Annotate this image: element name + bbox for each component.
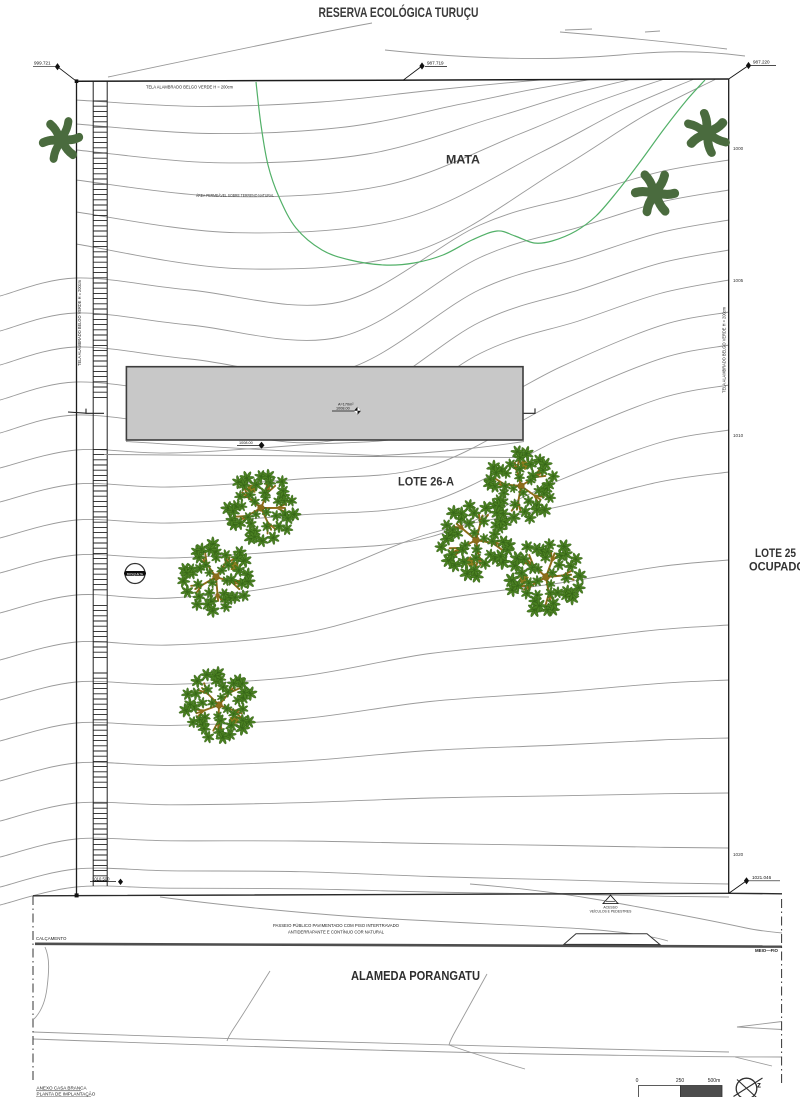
svg-text:1005: 1005 [733, 278, 744, 283]
svg-text:TELA ALAMBRADO BELGO VERDE H =: TELA ALAMBRADO BELGO VERDE H = 200cm [77, 280, 82, 366]
svg-text:CALÇAMENTO: CALÇAMENTO [36, 936, 67, 941]
svg-text:0: 0 [636, 1078, 639, 1084]
svg-text:LOTE 26-A: LOTE 26-A [398, 477, 454, 489]
svg-text:TELA ALAMBRADO BELGO VERDE H =: TELA ALAMBRADO BELGO VERDE H = 200cm [722, 307, 727, 393]
svg-text:LOTE 25: LOTE 25 [755, 546, 796, 560]
svg-text:1021.046: 1021.046 [752, 875, 772, 880]
svg-text:1008.00: 1008.00 [239, 441, 253, 445]
svg-text:1000: 1000 [733, 146, 744, 151]
svg-text:1010.500: 1010.500 [92, 877, 110, 882]
svg-text:ANTIDERRAPANTE E CONTÍNUO COR: ANTIDERRAPANTE E CONTÍNUO COR NATURAL [288, 930, 385, 935]
svg-text:MEIO—FIO: MEIO—FIO [755, 948, 779, 953]
svg-text:987.220: 987.220 [753, 60, 770, 65]
svg-text:987.719: 987.719 [427, 61, 444, 66]
svg-text:999.721: 999.721 [34, 61, 51, 66]
svg-text:VEÍCULOS E PEDESTRES: VEÍCULOS E PEDESTRES [590, 910, 633, 914]
svg-text:BOSQUETE: BOSQUETE [127, 572, 143, 576]
svg-text:500m: 500m [708, 1078, 721, 1084]
svg-text:z: z [757, 1081, 761, 1090]
svg-text:1008.00: 1008.00 [336, 407, 350, 411]
svg-text:250: 250 [676, 1078, 685, 1084]
svg-text:OCUPADO: OCUPADO [749, 560, 800, 574]
svg-text:1020: 1020 [733, 852, 744, 857]
svg-text:1010: 1010 [733, 433, 744, 438]
svg-text:ÁREA PERMEÁVEL SOBRE TERRENO N: ÁREA PERMEÁVEL SOBRE TERRENO NATURAL [196, 193, 274, 198]
svg-text:TELA ALAMBRADO BELGO VERDE H =: TELA ALAMBRADO BELGO VERDE H = 200cm [146, 85, 233, 90]
svg-text:PLANTA DE IMPLANTAÇÃO: PLANTA DE IMPLANTAÇÃO [37, 1091, 96, 1097]
svg-text:MATA: MATA [446, 153, 480, 167]
svg-text:ANEXO CASA BRANCA: ANEXO CASA BRANCA [37, 1086, 88, 1091]
svg-text:ALAMEDA PORANGATU: ALAMEDA PORANGATU [351, 969, 480, 983]
svg-text:RESERVA ECOLÓGICA TURUÇU: RESERVA ECOLÓGICA TURUÇU [319, 3, 479, 20]
svg-text:PASSEIO PÚBLICO PAVIMENTADO CO: PASSEIO PÚBLICO PAVIMENTADO COM PISO INT… [273, 923, 400, 928]
